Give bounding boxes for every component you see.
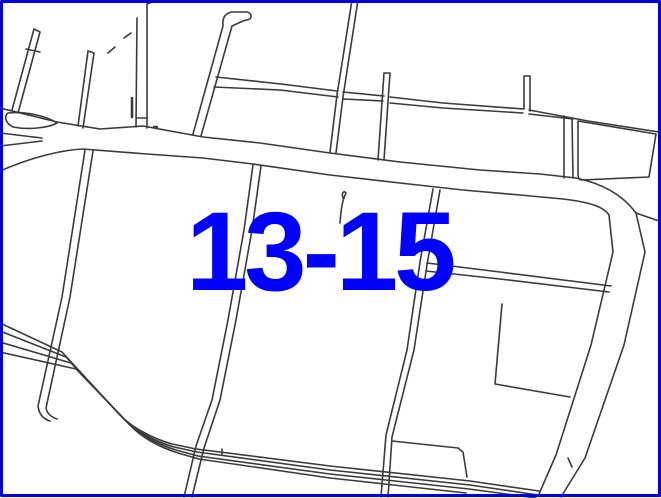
- road-fork-upper-line: [0, 133, 42, 138]
- vertical-street-top-left: [136, 2, 152, 128]
- map-canvas[interactable]: 13-15: [0, 0, 661, 498]
- stub-lane-b: [524, 76, 530, 111]
- parcel-number-label: 13-15: [186, 196, 486, 308]
- hooked-street-top-center: [193, 12, 251, 136]
- northwest-lane-b: [78, 51, 94, 128]
- parcel-divider-right: [564, 116, 573, 178]
- small-tick-marks: [108, 33, 131, 53]
- narrow-lane-lower-line: [214, 87, 573, 119]
- highway-line-2: [0, 331, 538, 495]
- highway-line-3: [0, 342, 536, 498]
- road-fork-lower-line: [0, 141, 42, 146]
- l-shaped-boundary: [495, 304, 570, 397]
- road-bend-stub: [636, 213, 659, 221]
- vertical-street-top-right: [330, 0, 358, 153]
- small-tick-right-road: [568, 458, 572, 467]
- northwest-lane-a: [12, 29, 40, 113]
- stub-lane-a: [378, 73, 390, 160]
- step-parcel-boundary: [392, 441, 467, 477]
- parcel-lane-a: [38, 150, 93, 421]
